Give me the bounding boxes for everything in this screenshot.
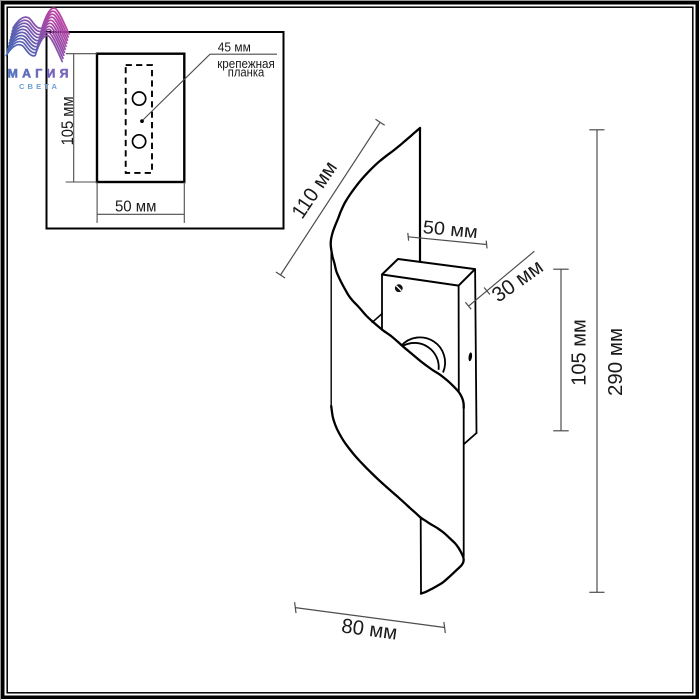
svg-text:105 мм: 105 мм (569, 319, 591, 385)
svg-text:МАГИЯ: МАГИЯ (8, 69, 73, 81)
svg-text:СВЕТА: СВЕТА (19, 82, 60, 91)
svg-text:45 мм: 45 мм (218, 40, 251, 55)
svg-text:290 мм: 290 мм (604, 328, 627, 396)
svg-text:планка: планка (228, 65, 265, 79)
svg-text:105 мм: 105 мм (58, 96, 77, 145)
svg-text:50 мм: 50 мм (115, 198, 157, 215)
